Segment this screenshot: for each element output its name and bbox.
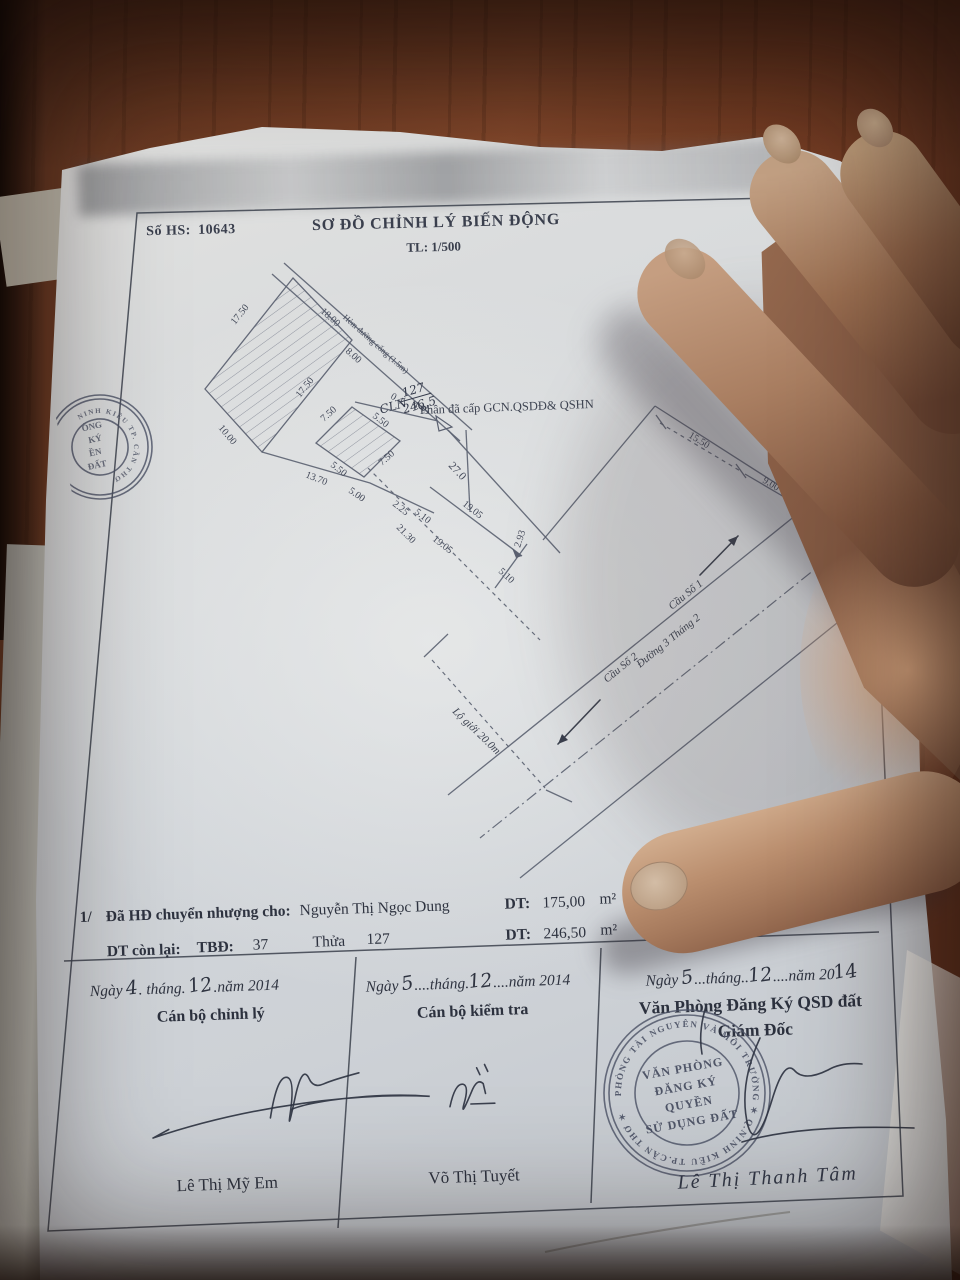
apex-mark <box>436 416 452 431</box>
row2-tbd-value: 37 <box>252 936 268 953</box>
header: Số HS: 10643 SƠ ĐỒ CHỈNH LÝ BIẾN ĐỘNG TL… <box>146 208 561 261</box>
date-line-middle: Ngày 5....tháng.12....năm 2014 <box>364 966 571 997</box>
row2-tbd-label: TBĐ: <box>197 938 235 956</box>
row2-label: DT còn lại: <box>107 941 181 960</box>
signature-block-left: Ngày 4. tháng. 12.năm 2014 Cán bộ chỉnh … <box>88 966 433 1198</box>
dimension-label: 19.05 <box>460 499 485 522</box>
dimension-label: 17.50 <box>229 302 252 326</box>
photo-of-survey-document: Số HS: 10643 SƠ ĐỒ CHỈNH LÝ BIẾN ĐỘNG TL… <box>0 0 960 1280</box>
dimension-label: 13.70 <box>304 470 329 489</box>
dimension-label: 27.0 <box>446 460 469 483</box>
left-stamp-text: KÝ <box>87 432 103 445</box>
row1-unit: m² <box>599 890 617 908</box>
name-right: Lê Thị Thanh Tâm <box>676 1162 858 1193</box>
document-title: SƠ ĐỒ CHỈNH LÝ BIẾN ĐỘNG <box>312 208 561 234</box>
dimension-label: 10.00 <box>216 423 239 447</box>
row2-dt-value: 246,50 <box>543 924 586 942</box>
granted-area-label: Phần đã cấp GCN.QSDĐ& QSHN <box>420 397 594 417</box>
left-stamp-text: ỀN <box>88 446 103 458</box>
dimension-label: 21.30 <box>394 522 418 546</box>
left-stamp-text: ĐẤT <box>87 458 108 472</box>
bottom-shadow <box>0 1225 960 1280</box>
row1-name: Nguyễn Thị Ngọc Dung <box>299 897 450 919</box>
signature-middle <box>449 1064 496 1109</box>
file-number-label: Số HS: <box>146 223 191 239</box>
name-left: Lê Thị Mỹ Em <box>176 1173 278 1196</box>
org-right: Văn Phòng Đăng Ký QSD đất <box>639 990 863 1018</box>
file-number-value: 10643 <box>198 222 236 238</box>
left-partial-stamp: ÒNG KÝ ỀN ĐẤT NINH KIỀU TP. CẦN THƠ <box>38 385 161 508</box>
dimension-label: 8.00 <box>343 346 363 366</box>
signature-block-middle: Ngày 5....tháng.12....năm 2014 Cán bộ ki… <box>364 966 577 1190</box>
row1-index: 1/ <box>79 909 92 926</box>
date-line-left: Ngày 4. tháng. 12.năm 2014 <box>88 971 279 1002</box>
dimension-label: 19.05 <box>430 534 455 557</box>
role-left: Cán bộ chỉnh lý <box>157 1005 266 1026</box>
row1-dt-label: DT: <box>504 895 530 913</box>
dimension-label: 7.50 <box>319 404 339 424</box>
setback-label: Lộ giới 20.0m <box>449 705 503 757</box>
date-line-right: Ngày 5...tháng..12....năm 2014 <box>644 959 860 990</box>
signature-right-tail <box>742 1127 914 1142</box>
row2-thua-value: 127 <box>366 930 390 948</box>
signature-right <box>745 1038 862 1135</box>
map-scale: TL: 1/500 <box>406 239 461 255</box>
left-stamp-text: ÒNG <box>81 419 103 433</box>
role-middle: Cán bộ kiểm tra <box>417 1001 529 1022</box>
row2-dt-label: DT: <box>505 926 531 944</box>
row1-label: Đã HĐ chuyển nhượng cho: <box>105 902 290 925</box>
row1-dt-value: 175,00 <box>542 893 585 911</box>
dimension-label: 5.00 <box>346 485 367 504</box>
name-middle: Võ Thị Tuyết <box>428 1165 520 1187</box>
dimension-label: 5.10 <box>412 507 433 526</box>
left-stamp-ring-text: NINH KIỀU TP. CẦN THƠ <box>76 399 148 488</box>
signature-block-right: Ngày 5...tháng..12....năm 2014 Văn Phòng… <box>637 959 863 1044</box>
svg-text:NINH KIỀU TP. CẦN THƠ: NINH KIỀU TP. CẦN THƠ <box>76 399 148 488</box>
row2-thua-label: Thửa <box>312 933 345 951</box>
